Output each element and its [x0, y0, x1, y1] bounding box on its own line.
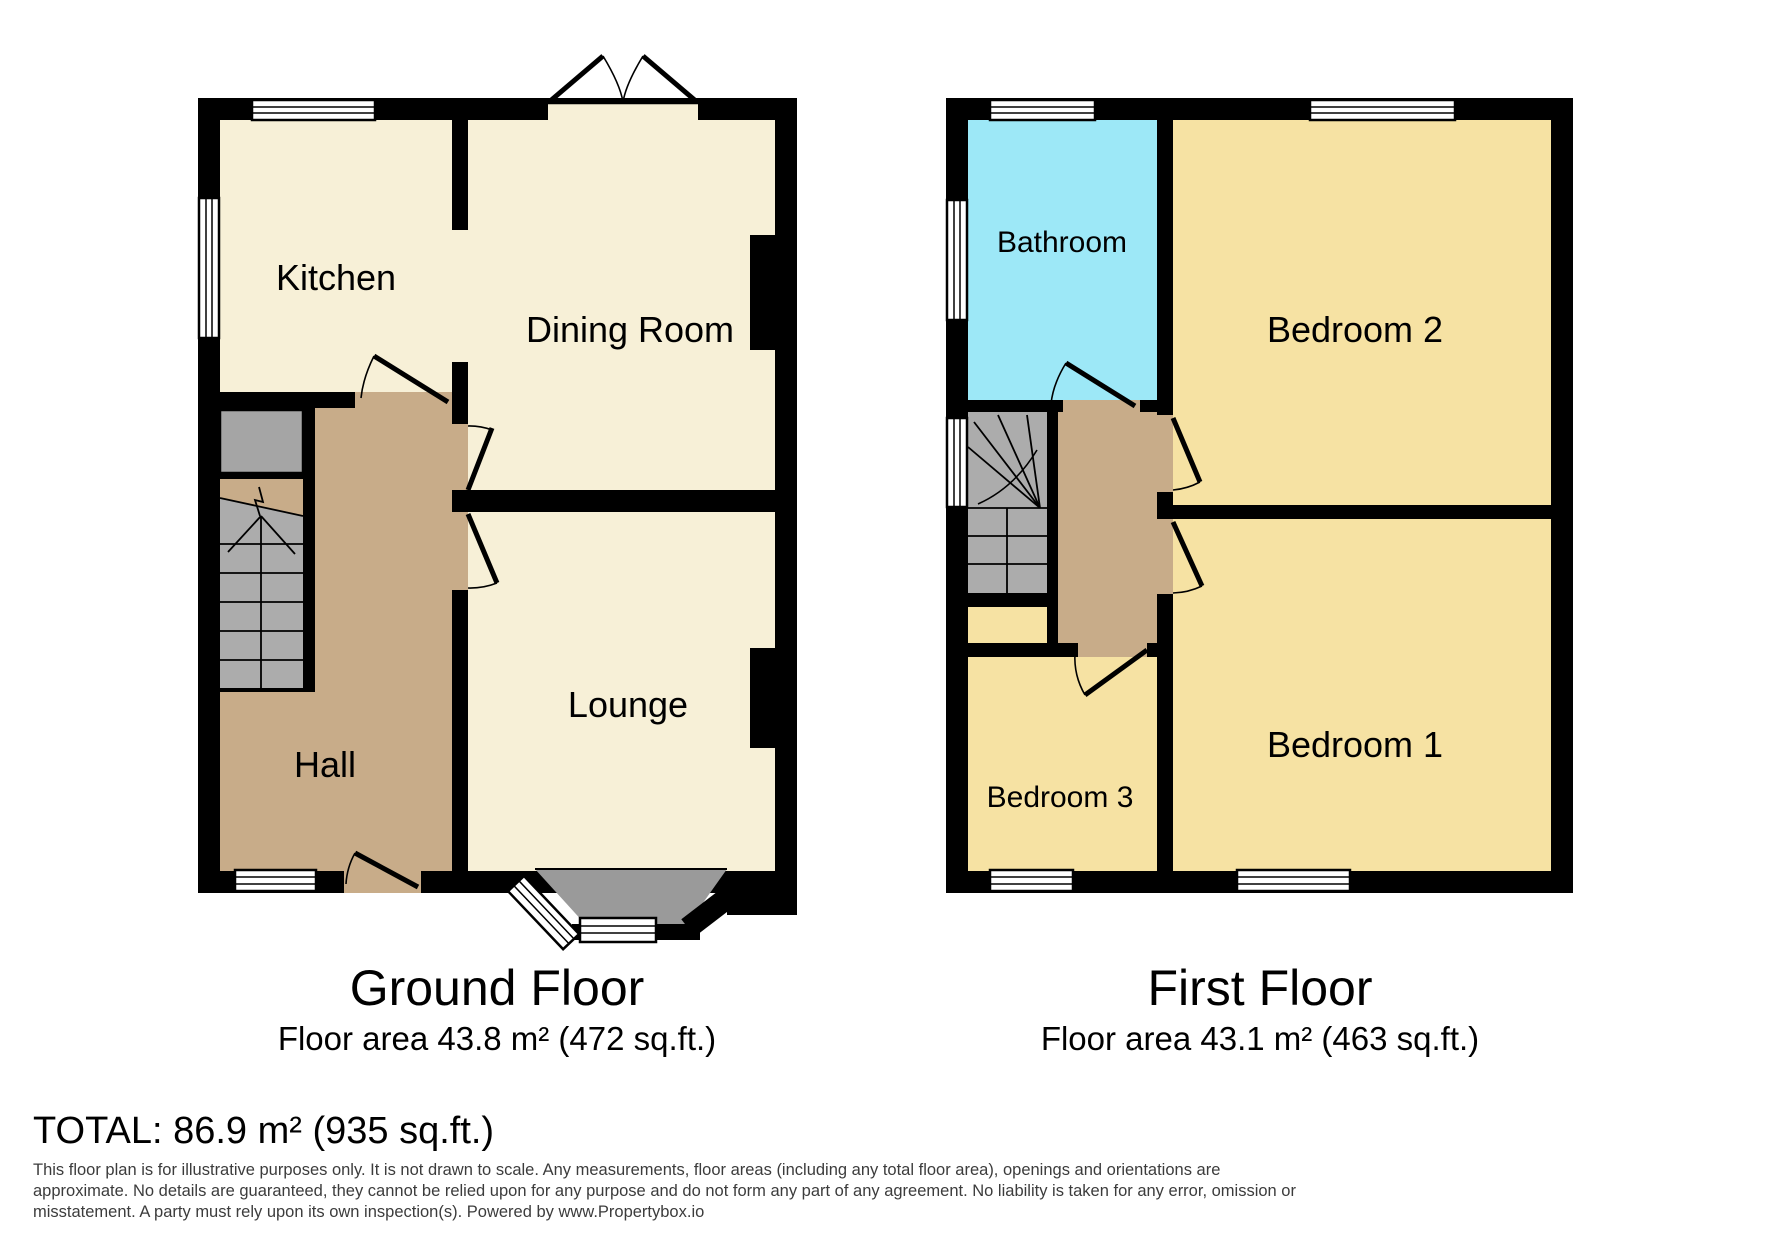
chimney-breast-dining [750, 235, 775, 350]
wall-kitchen-dining-upper [452, 120, 468, 230]
window-hall-bottom [235, 870, 316, 891]
lounge-label: Lounge [568, 684, 688, 725]
landing [1058, 400, 1173, 657]
window-kitchen-left [199, 198, 219, 338]
wall-hall-lounge [452, 590, 468, 871]
total-area: TOTAL: 86.9 m² (935 sq.ft.) [33, 1110, 494, 1152]
wall-dining-lounge [452, 490, 775, 512]
wall-divider-lower [1157, 594, 1173, 871]
disclaimer-line-3: misstatement. A party must rely upon its… [33, 1203, 704, 1221]
disclaimer-line-1: This floor plan is for illustrative purp… [33, 1161, 1220, 1179]
hall-label: Hall [294, 744, 356, 785]
kitchen-label: Kitchen [276, 257, 396, 298]
wall-kitchen-bottom [220, 392, 355, 408]
floor-plan-canvas: Kitchen Dining Room Lounge Hall [0, 0, 1771, 1239]
window-bedroom2-top [1310, 100, 1455, 120]
disclaimer: This floor plan is for illustrative purp… [33, 1161, 1296, 1221]
wall-bed3-top-right [1147, 643, 1157, 657]
wall-bed3-top-left [968, 643, 1078, 657]
first-floor-area: Floor area 43.1 m² (463 sq.ft.) [1041, 1020, 1479, 1057]
floor-plan-page: Kitchen Dining Room Lounge Hall [0, 0, 1771, 1239]
first-floor-title: First Floor [1148, 960, 1373, 1016]
bay-window-front [580, 918, 656, 942]
window-bathroom-top [990, 100, 1095, 120]
bedroom3-label: Bedroom 3 [987, 781, 1134, 814]
bedroom1-label: Bedroom 1 [1267, 724, 1443, 765]
wall-bathroom-bottom-right [1140, 400, 1157, 412]
first-floor-plan: Bathroom Bedroom 2 Bedroom 1 Bedroom 3 [946, 98, 1573, 893]
window-bedroom1-bottom [1237, 870, 1350, 891]
understairs-storage [220, 410, 303, 473]
ground-floor-area: Floor area 43.8 m² (472 sq.ft.) [278, 1020, 716, 1057]
wall-bathroom-bottom-left [968, 400, 1063, 412]
room-bathroom [968, 120, 1157, 400]
french-doors-dining [548, 56, 698, 122]
wall-divider-upper [1157, 120, 1173, 415]
window-kitchen-top [252, 100, 375, 120]
window-bedroom3-bottom [990, 870, 1073, 891]
window-bathroom-left [947, 200, 967, 320]
bedroom2-label: Bedroom 2 [1267, 309, 1443, 350]
staircase-first [968, 412, 1047, 593]
disclaimer-line-2: approximate. No details are guaranteed, … [33, 1182, 1296, 1200]
wall-stairs-landing [1047, 412, 1058, 607]
wall-under-stairs [968, 593, 1058, 607]
ground-floor-plan: Kitchen Dining Room Lounge Hall [198, 56, 797, 949]
staircase-ground [218, 408, 315, 690]
wall-bed1-bed2 [1157, 505, 1551, 519]
dining-room-label: Dining Room [526, 309, 734, 350]
ground-floor-title: Ground Floor [350, 960, 645, 1016]
window-landing-left [947, 418, 967, 507]
chimney-breast-lounge [750, 648, 775, 748]
bathroom-label: Bathroom [997, 226, 1127, 259]
room-dining [452, 120, 775, 490]
room-bedroom1 [1173, 519, 1551, 871]
wall-kitchen-dining-lower [452, 362, 468, 424]
